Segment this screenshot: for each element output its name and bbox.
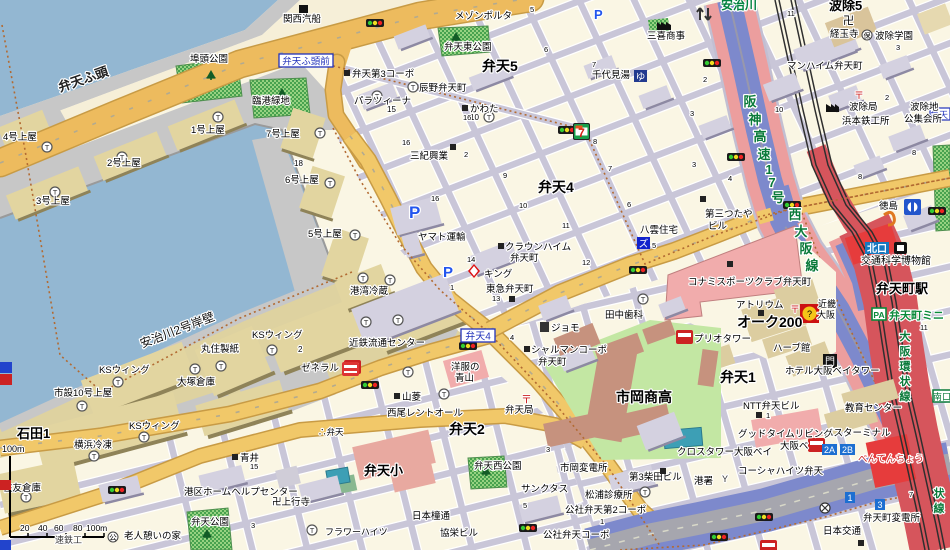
svg-text:T: T [442,390,447,399]
svg-text:P: P [409,203,420,222]
svg-text:弁天町: 弁天町 [538,356,567,368]
svg-text:ズ: ズ [639,238,649,250]
svg-text:状: 状 [934,486,946,500]
svg-text:日本橦通: 日本橦通 [412,510,451,522]
svg-text:大: 大 [794,224,807,239]
svg-text:2: 2 [885,93,889,102]
svg-text:?: ? [807,309,812,319]
svg-text:6: 6 [627,200,631,209]
svg-text:交通科学博物館: 交通科学博物館 [861,254,931,267]
svg-text:T: T [406,368,411,377]
svg-text:コナミスポーツクラブ弁天町: コナミスポーツクラブ弁天町 [688,276,812,288]
svg-text:T: T [80,402,85,411]
svg-text:ハーブ館: ハーブ館 [773,342,810,354]
svg-text:T: T [219,362,224,371]
svg-text:弁天町駅: 弁天町駅 [876,281,929,296]
svg-text:10: 10 [519,201,527,210]
svg-text:80: 80 [73,523,83,533]
svg-text:3: 3 [692,160,696,169]
svg-text:3: 3 [896,43,900,52]
svg-text:13: 13 [492,294,500,303]
svg-text:千代見湯: 千代見湯 [592,69,631,81]
svg-text:クラウンハイム: クラウンハイム [505,242,571,253]
svg-text:T: T [24,493,29,502]
svg-text:7: 7 [578,126,585,140]
svg-text:コーシャハイツ弁天: コーシャハイツ弁天 [738,465,824,477]
svg-text:べんてんちょう: べんてんちょう [858,454,924,465]
svg-text:埠頭公園: 埠頭公園 [190,53,228,65]
svg-text:横浜冷凍: 横浜冷凍 [74,439,113,451]
svg-text:サンクタス: サンクタス [521,484,568,495]
svg-text:辰野弁天町: 辰野弁天町 [419,82,467,94]
svg-text:ホテル大阪ベイタワー: ホテル大阪ベイタワー [785,365,880,377]
svg-text:弁天町変電所: 弁天町変電所 [863,512,921,524]
svg-text:5: 5 [530,5,534,14]
svg-text:T: T [216,113,221,122]
svg-text:4: 4 [728,174,732,183]
svg-text:〒: 〒 [790,305,800,316]
svg-text:60: 60 [54,523,64,533]
svg-text:7: 7 [909,490,913,499]
svg-text:12: 12 [582,258,590,267]
svg-text:教育センター: 教育センター [845,402,902,414]
svg-text:〒: 〒 [854,91,864,102]
svg-text:4号上屋: 4号上屋 [3,132,37,143]
svg-text:洋服の: 洋服の [451,361,480,373]
svg-text:港署: 港署 [694,475,713,487]
svg-text:大: 大 [900,329,911,343]
svg-text:ジョモ: ジョモ [551,323,580,334]
svg-text:弁天町: 弁天町 [510,252,539,264]
svg-text:1: 1 [600,517,604,526]
svg-text:T: T [643,488,648,497]
svg-text:高: 高 [753,129,766,144]
svg-text:1: 1 [847,493,852,503]
svg-text:弁天東公園: 弁天東公園 [444,41,492,53]
svg-text:1: 1 [766,411,770,420]
svg-text:状: 状 [900,374,912,388]
svg-text:プリオタワー: プリオタワー [694,334,751,345]
svg-text:弁天小: 弁天小 [364,463,403,478]
svg-text:3: 3 [546,445,550,454]
svg-text:波除地: 波除地 [910,101,939,113]
svg-text:公: 公 [109,533,117,542]
svg-text:第三つたや: 第三つたや [705,208,753,220]
svg-text:7: 7 [592,60,596,69]
svg-text:15: 15 [387,105,396,114]
svg-text:メゾンポルタ: メゾンポルタ [455,11,512,22]
svg-text:T: T [353,231,358,240]
svg-text:6号上屋: 6号上屋 [285,175,319,186]
svg-text:7号上屋: 7号上屋 [266,129,300,140]
svg-text:関西汽船: 関西汽船 [283,13,322,25]
svg-text:弁天第3コーポ: 弁天第3コーポ [352,68,414,80]
svg-text:T: T [92,452,97,461]
svg-text:P: P [443,264,453,281]
svg-text:3号上屋: 3号上屋 [36,196,70,207]
svg-text:青山: 青山 [455,372,474,384]
svg-text:速鉄工: 速鉄工 [55,534,82,545]
svg-text:16: 16 [431,194,439,203]
svg-text:速: 速 [757,147,770,162]
svg-text:3: 3 [251,521,255,530]
svg-text:KSウィング: KSウィング [99,364,150,376]
svg-text:8: 8 [593,137,597,146]
svg-text:公集会所: 公集会所 [904,113,943,125]
svg-text:臨港緑地: 臨港緑地 [252,95,291,107]
svg-text:10: 10 [470,113,479,122]
svg-text:T: T [193,365,198,374]
svg-text:T: T [364,318,369,327]
svg-text:弁天西公園: 弁天西公園 [474,460,522,472]
svg-text:KSウィング: KSウィング [252,329,303,341]
svg-text:弁天ふ頭前: 弁天ふ頭前 [282,56,330,68]
svg-text:7: 7 [608,164,612,173]
svg-text:2号上屋: 2号上屋 [107,158,141,169]
svg-text:阪: 阪 [900,344,912,358]
svg-text:フラワーハイツ: フラワーハイツ [325,527,388,537]
svg-text:波除局: 波除局 [849,101,878,113]
svg-text:松浦診療所: 松浦診療所 [585,489,633,501]
svg-text:2A: 2A [824,445,835,455]
svg-text:八雲住宅: 八雲住宅 [640,224,678,236]
svg-text:老人憩いの家: 老人憩いの家 [124,530,182,542]
svg-text:P: P [594,7,603,22]
svg-text:山菱: 山菱 [402,391,422,403]
svg-text:ゼネラル: ゼネラル [301,362,340,374]
svg-text:浜本鉄工所: 浜本鉄工所 [842,115,890,127]
svg-text:線: 線 [934,501,945,515]
svg-text:T: T [270,346,275,355]
svg-text:弁天公園: 弁天公園 [191,516,229,528]
svg-text:近鉄流通センター: 近鉄流通センター [349,337,425,349]
svg-text:安治川: 安治川 [721,0,757,12]
svg-text:第3柴田ビル: 第3柴田ビル [629,471,682,483]
svg-text:T: T [396,316,401,325]
svg-text:大塚倉庫: 大塚倉庫 [177,376,216,388]
svg-text:3: 3 [690,109,694,118]
svg-text:7: 7 [768,175,775,190]
svg-text:100m: 100m [86,523,107,533]
svg-text:西: 西 [788,207,801,222]
svg-text:1: 1 [450,283,454,292]
svg-text:田中歯科: 田中歯科 [605,309,644,321]
svg-text:〒: 〒 [521,394,532,406]
svg-text:波除5: 波除5 [829,0,862,13]
svg-text:8: 8 [912,148,916,157]
svg-text:丸住製紙: 丸住製紙 [201,343,240,355]
svg-text:PA: PA [873,310,884,320]
svg-text:T: T [361,274,366,283]
svg-text:パラツィーナ: パラツィーナ [354,96,411,107]
svg-text:大阪: 大阪 [817,309,835,320]
svg-text:Y: Y [722,474,728,484]
svg-text:T: T [411,83,416,92]
svg-text:3: 3 [877,500,882,510]
svg-text:T: T [142,433,147,442]
svg-text:20: 20 [20,523,30,533]
svg-text:4: 4 [510,333,514,342]
svg-text:北口: 北口 [867,242,887,255]
svg-text:シャルマンコーポ: シャルマンコーポ [531,345,607,356]
svg-text:T: T [328,179,333,188]
svg-text:アトリウム: アトリウム [736,300,784,311]
svg-text:弁天4: 弁天4 [465,330,491,343]
svg-text:弁天町ミニ: 弁天町ミニ [889,308,944,322]
svg-text:T: T [310,526,315,535]
svg-text:神: 神 [748,112,761,127]
svg-text:2B: 2B [842,445,853,455]
svg-text:5号上屋: 5号上屋 [308,229,342,240]
svg-text:市岡商高: 市岡商高 [616,389,672,405]
svg-text:グッドタイムリビング: グッドタイムリビング [738,428,833,440]
svg-text:キング: キング [484,268,513,280]
svg-text:9: 9 [503,171,507,180]
svg-text:経玉寺: 経玉寺 [830,28,859,40]
svg-text:11: 11 [787,9,795,18]
svg-text:三紀興業: 三紀興業 [410,150,449,162]
svg-text:バスターミナル: バスターミナル [824,428,891,439]
svg-text:T: T [388,276,393,285]
svg-text:港湾冷蔵: 港湾冷蔵 [350,285,389,297]
svg-text:1号上屋: 1号上屋 [191,125,225,136]
svg-text:徳島: 徳島 [879,200,898,212]
svg-text:∴弁天: ∴弁天 [318,427,344,437]
svg-text:南口: 南口 [933,391,950,402]
svg-text:弁天2: 弁天2 [449,421,485,437]
svg-text:11: 11 [920,323,928,332]
svg-text:石田1: 石田1 [16,426,50,441]
svg-text:6: 6 [544,45,548,54]
svg-text:14: 14 [467,255,475,264]
svg-text:T: T [45,143,50,152]
svg-text:日本交通: 日本交通 [823,525,862,537]
svg-text:5: 5 [523,501,527,510]
svg-text:ヤマト運輸: ヤマト運輸 [418,231,466,243]
svg-text:弁天5: 弁天5 [482,58,518,74]
svg-text:100m: 100m [2,444,25,454]
svg-text:弁天1: 弁天1 [720,369,756,385]
svg-text:8: 8 [858,172,862,181]
svg-text:マンハイム弁天町: マンハイム弁天町 [787,60,863,72]
svg-text:線: 線 [805,258,819,273]
svg-text:10: 10 [775,105,783,114]
svg-text:2: 2 [464,150,468,159]
svg-text:市岡変電所: 市岡変電所 [560,462,608,474]
svg-text:東急弁天町: 東急弁天町 [486,283,534,295]
svg-text:波除学園: 波除学園 [875,30,913,42]
svg-text:16: 16 [402,138,410,147]
svg-text:阪: 阪 [799,241,813,256]
svg-text:5: 5 [652,241,656,250]
svg-text:16: 16 [463,113,471,122]
svg-text:T: T [318,129,323,138]
svg-text:号: 号 [771,190,784,205]
svg-text:クロスタワー大阪ベイ: クロスタワー大阪ベイ [677,446,772,458]
svg-text:近畿: 近畿 [818,298,836,309]
svg-text:保: 保 [864,31,871,40]
svg-text:西尾レントオール: 西尾レントオール [387,408,464,419]
svg-text:弁天4: 弁天4 [538,179,574,195]
svg-text:ゆ: ゆ [636,72,646,83]
svg-text:ビル: ビル [708,221,728,232]
svg-text:2: 2 [703,75,707,84]
svg-text:卍: 卍 [843,14,854,27]
svg-text:青井: 青井 [240,452,259,464]
svg-text:T: T [116,378,121,387]
svg-text:大阪ベ: 大阪ベ [780,440,809,452]
svg-text:市設10号上屋: 市設10号上屋 [54,387,112,399]
svg-text:KSウィング: KSウィング [129,420,180,432]
svg-text:協栄ビル: 協栄ビル [440,527,479,539]
svg-text:公社弁天第2コーポ: 公社弁天第2コーポ [565,504,646,516]
svg-text:環: 環 [900,360,912,373]
svg-text:オーク200: オーク200 [737,314,803,330]
svg-text:線: 線 [900,389,911,403]
svg-text:11: 11 [562,221,570,230]
svg-text:公社弁天コーポ: 公社弁天コーポ [543,529,610,541]
svg-text:卍上行寺: 卍上行寺 [272,496,311,508]
svg-text:40: 40 [38,523,48,533]
svg-text:NTT弁天ビル: NTT弁天ビル [743,400,800,412]
svg-text:18: 18 [294,159,303,168]
svg-text:T: T [641,295,646,304]
svg-text:三喜商事: 三喜商事 [647,30,686,42]
svg-text:2: 2 [298,345,303,354]
svg-text:阪: 阪 [743,94,757,109]
